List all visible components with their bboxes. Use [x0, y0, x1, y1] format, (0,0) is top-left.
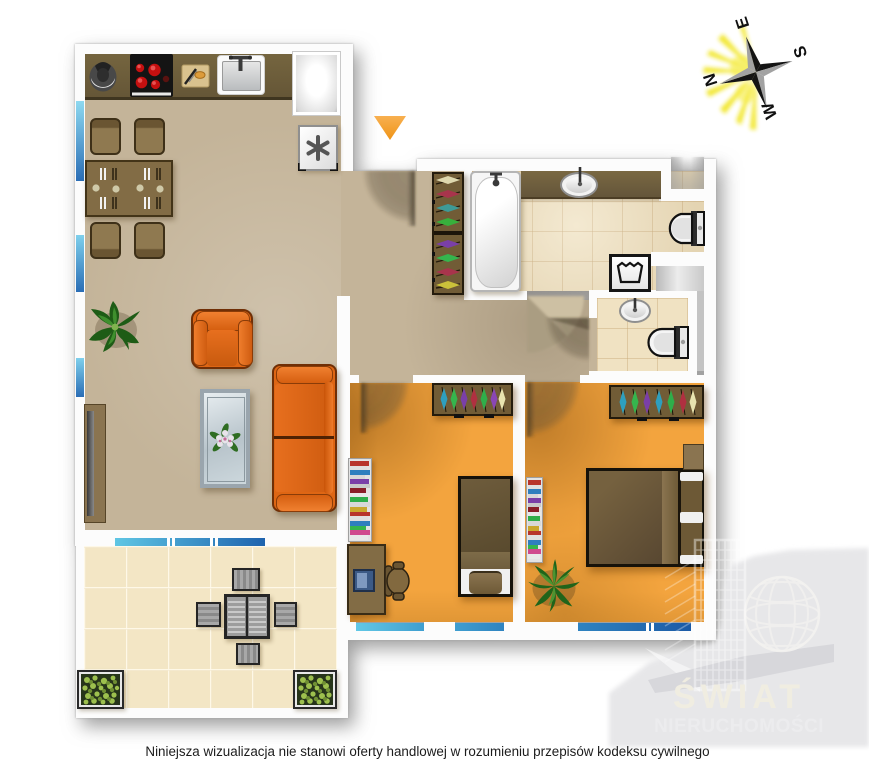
svg-text:W: W — [758, 99, 781, 121]
svg-text:NIERUCHOMOŚCI: NIERUCHOMOŚCI — [654, 715, 824, 737]
svg-text:S: S — [790, 44, 812, 61]
svg-text:ŚWIAT: ŚWIAT — [673, 678, 805, 716]
svg-text:E: E — [732, 15, 754, 32]
svg-text:N: N — [700, 71, 722, 89]
